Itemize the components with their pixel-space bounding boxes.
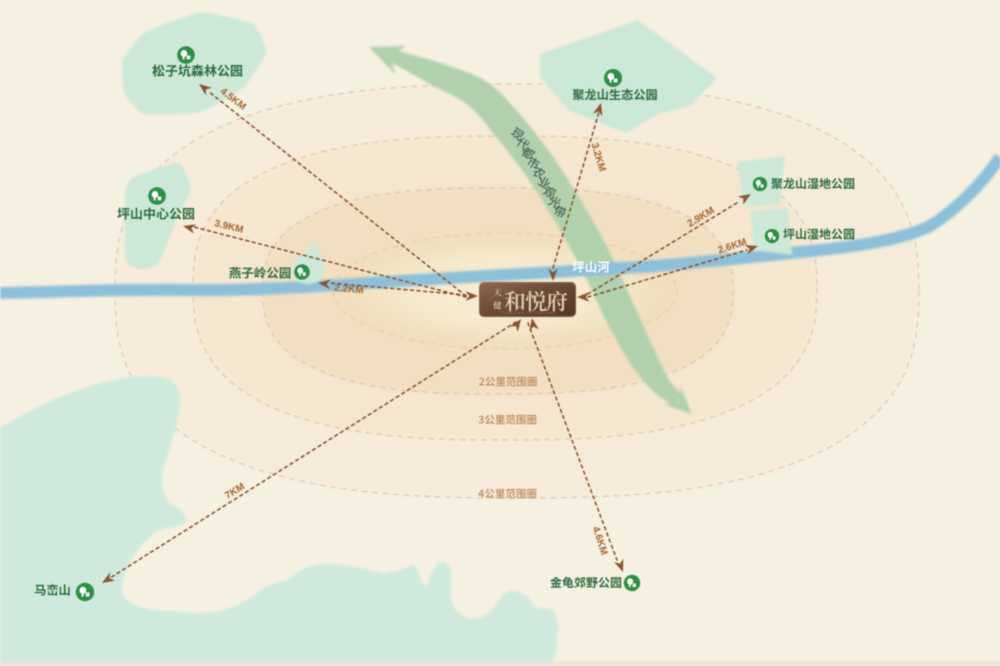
svg-text:TIANJIAN HEYUELAND: TIANJIAN HEYUELAND [502,311,557,315]
